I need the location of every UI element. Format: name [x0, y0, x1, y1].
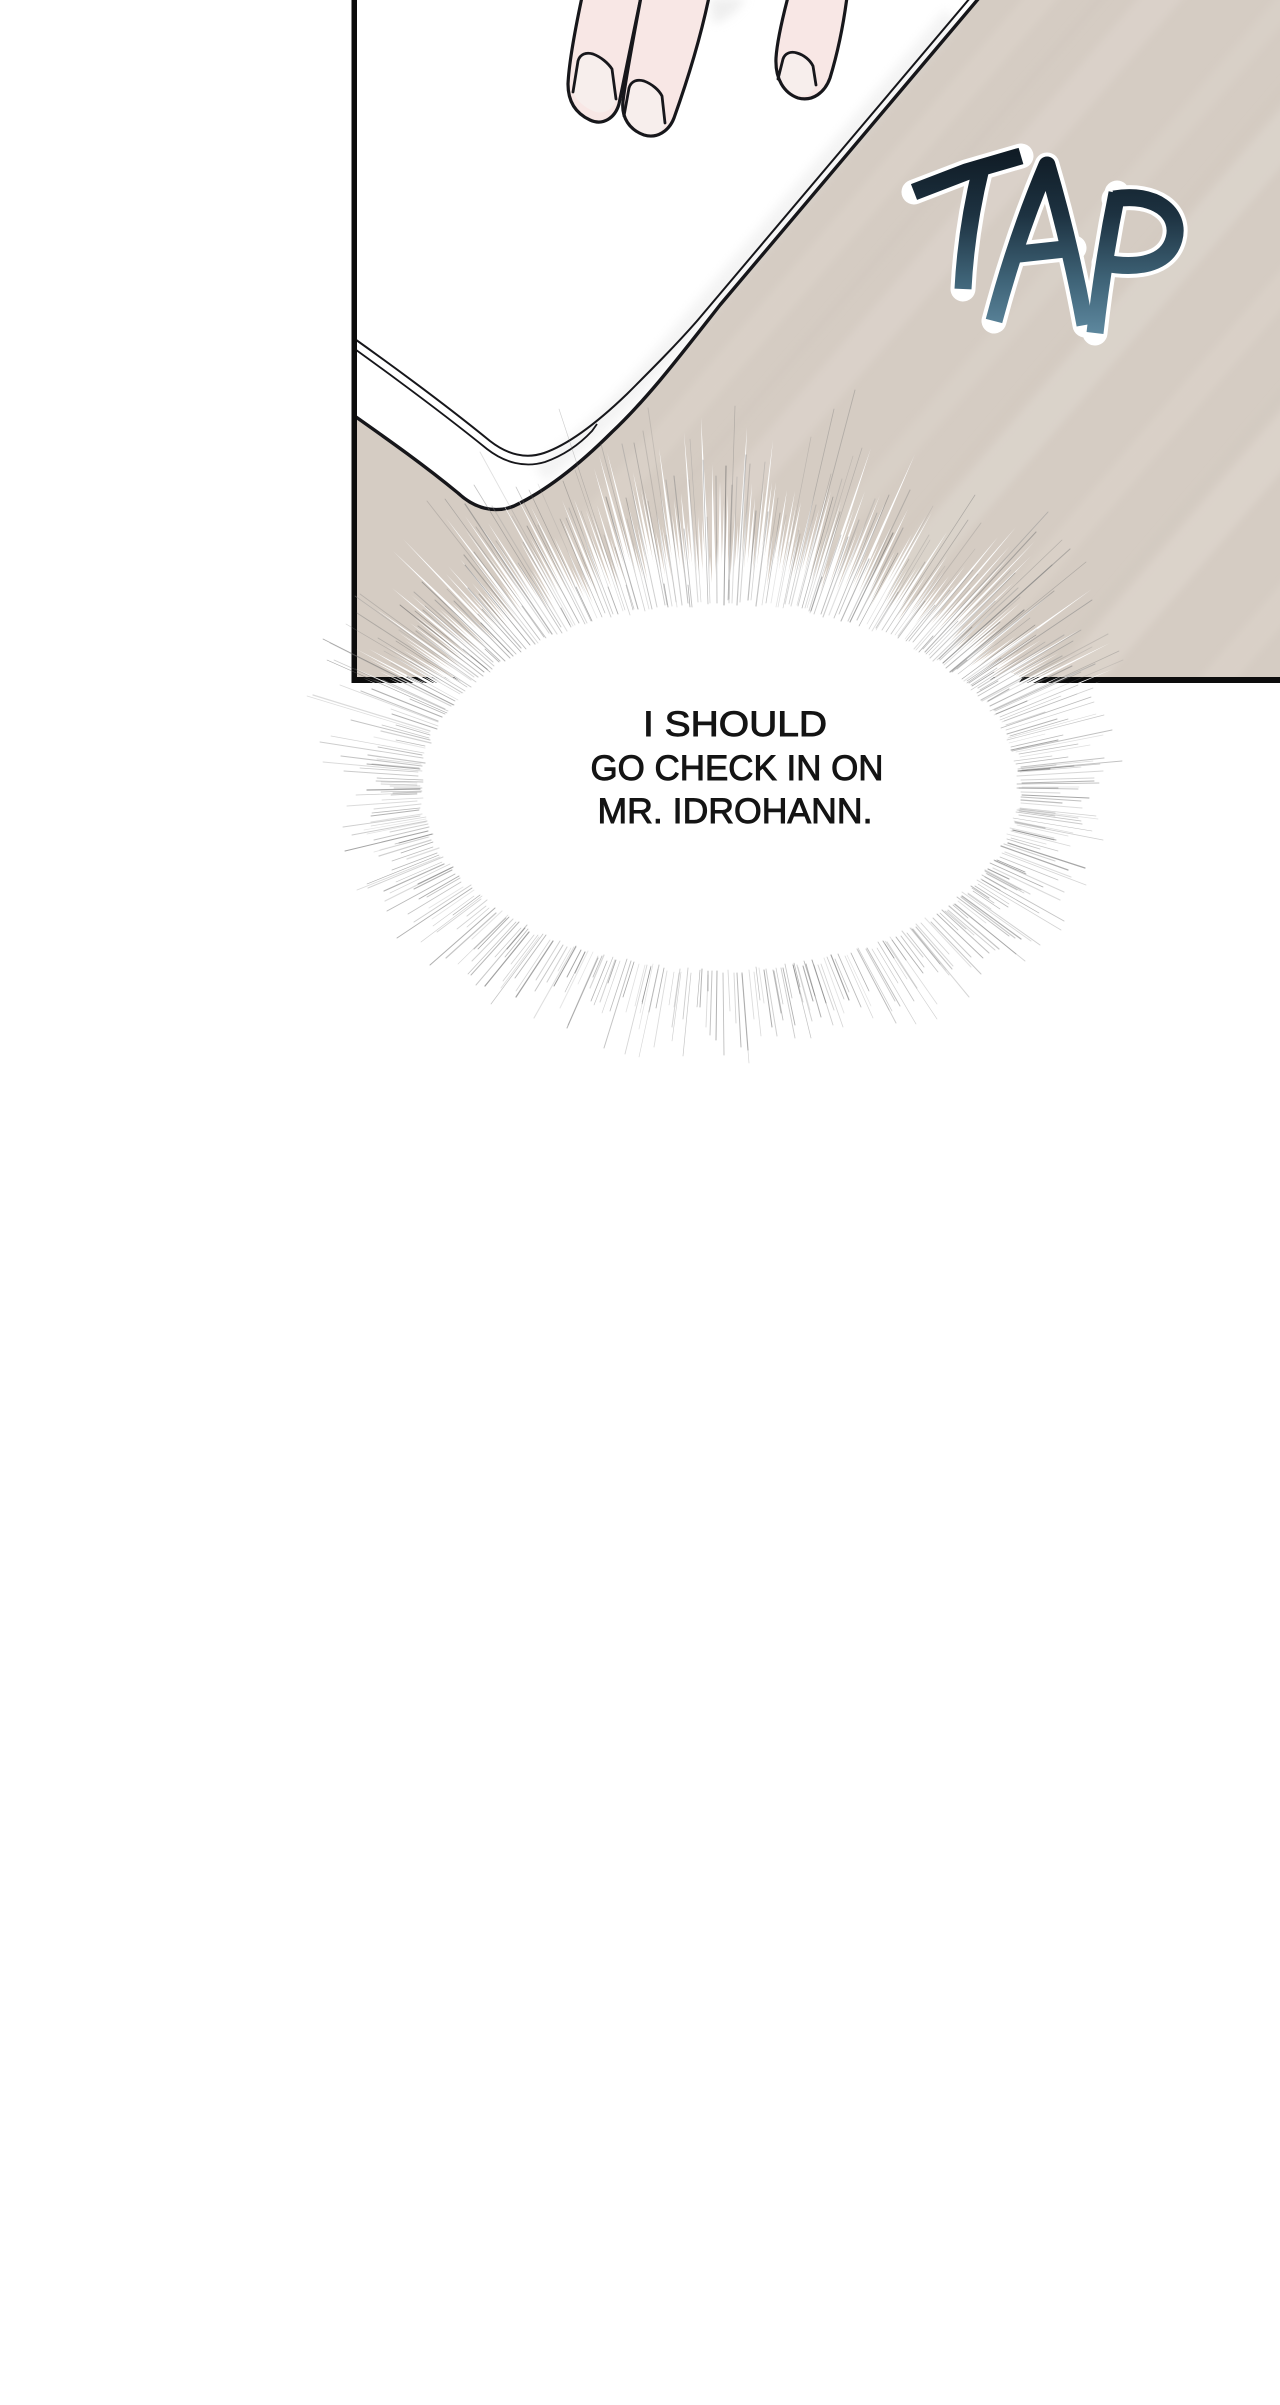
svg-text:GO CHECK IN ON: GO CHECK IN ON	[591, 749, 884, 788]
svg-text:I SHOULD: I SHOULD	[643, 705, 827, 744]
svg-text:MR. IDROHANN.: MR. IDROHANN.	[598, 792, 873, 831]
